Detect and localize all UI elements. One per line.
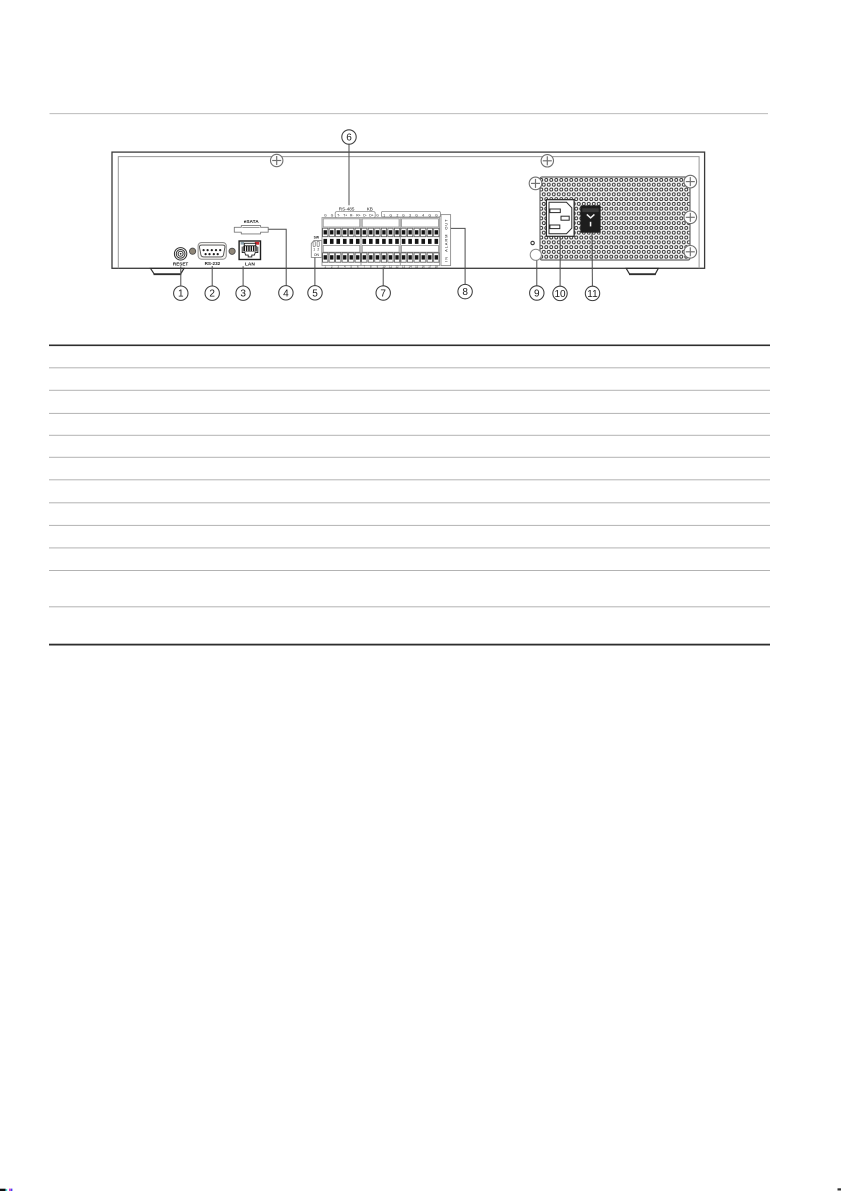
svg-text:3: 3 — [409, 213, 411, 217]
svg-text:9: 9 — [534, 289, 540, 300]
svg-text:4: 4 — [283, 288, 289, 299]
svg-text:7: 7 — [380, 289, 386, 300]
svg-text:RS-232: RS-232 — [205, 261, 221, 266]
svg-text:T-: T- — [337, 213, 340, 217]
svg-text:17: 17 — [428, 264, 432, 268]
svg-text:3: 3 — [240, 289, 246, 300]
svg-text:1: 1 — [178, 289, 184, 300]
svg-text:D+: D+ — [369, 213, 373, 217]
svg-text:G: G — [331, 213, 334, 217]
svg-text:10: 10 — [554, 289, 566, 300]
svg-text:8: 8 — [462, 287, 468, 298]
svg-text:1: 1 — [383, 213, 385, 217]
svg-text:R+: R+ — [356, 213, 360, 217]
svg-text:KB: KB — [367, 206, 373, 211]
svg-text:G: G — [435, 213, 438, 217]
svg-text:15: 15 — [415, 264, 419, 268]
svg-text:16: 16 — [422, 264, 426, 268]
svg-text:RS-485: RS-485 — [339, 206, 355, 211]
svg-text:G: G — [429, 213, 432, 217]
svg-text:IN ALARM OUT: IN ALARM OUT — [443, 218, 448, 261]
svg-text:10: 10 — [382, 264, 386, 268]
svg-text:6: 6 — [346, 133, 352, 144]
svg-text:18: 18 — [435, 264, 439, 268]
svg-text:RESET: RESET — [173, 262, 189, 267]
svg-text:G: G — [324, 213, 327, 217]
svg-text:1: 1 — [313, 248, 315, 252]
svg-text:eSATA: eSATA — [244, 219, 260, 225]
svg-text:5: 5 — [312, 288, 318, 299]
svg-text:D-: D- — [363, 213, 366, 217]
svg-text:ON: ON — [314, 253, 320, 257]
svg-text:R-: R- — [350, 213, 353, 217]
svg-text:12: 12 — [395, 264, 399, 268]
svg-text:2: 2 — [317, 248, 319, 252]
svg-text:2: 2 — [209, 289, 215, 300]
svg-text:11: 11 — [587, 289, 598, 300]
svg-text:G: G — [415, 213, 418, 217]
svg-text:13: 13 — [402, 264, 406, 268]
svg-text:G: G — [376, 213, 379, 217]
svg-text:SW: SW — [314, 236, 320, 240]
svg-text:11: 11 — [389, 264, 392, 268]
svg-text:G: G — [390, 213, 393, 217]
svg-text:LAN: LAN — [245, 261, 255, 267]
svg-text:T+: T+ — [343, 213, 347, 217]
svg-text:14: 14 — [409, 264, 413, 268]
svg-text:2: 2 — [396, 213, 398, 217]
svg-text:G: G — [402, 213, 405, 217]
svg-text:4: 4 — [422, 213, 424, 217]
